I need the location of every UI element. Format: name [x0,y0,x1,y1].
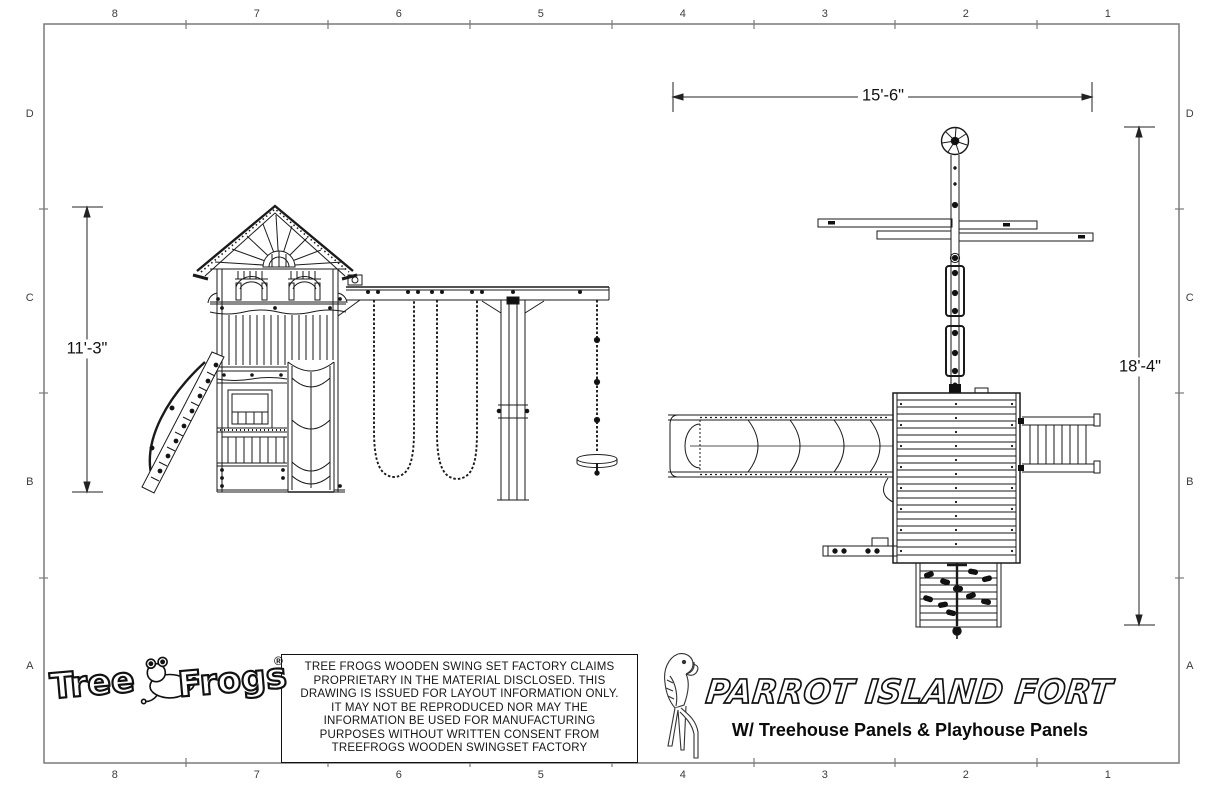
gable-corner-trim [208,269,347,303]
rock-wall-plan [916,563,1001,639]
playhouse-window [228,390,272,428]
buoy-ball-swing [577,300,617,475]
tube-slide-plan [668,415,893,502]
grid-col-label-bottom: 3 [822,769,829,781]
grid-col-label-bottom: 1 [1105,769,1112,781]
grid-row-label-left: A [26,660,34,672]
dimension-elevation-height: 11'-3" [63,340,112,359]
deck-planks [897,400,1016,555]
arched-window-right [288,271,321,300]
dimension-lines [72,82,1155,625]
grid-col-label-top: 8 [112,8,119,20]
grid-col-label-bottom: 6 [396,769,403,781]
grid-row-label-right: A [1186,660,1194,672]
drawing-sheet: 8 7 6 5 4 3 2 1 8 7 6 5 4 3 2 1 D C B A … [0,0,1224,792]
swing-beam-plan [818,155,1093,393]
disclaimer-line: PROPRIETARY IN THE MATERIAL DISCLOSED. T… [282,675,637,689]
title-block: PARROT ISLAND FORT W/ Treehouse Panels &… [648,650,1118,765]
grid-row-label-left: C [26,292,34,304]
top-plan-view [668,128,1100,640]
grid-row-label-right: D [1186,108,1194,120]
grid-col-label-top: 3 [822,8,829,20]
swing-beam-elevation [338,275,609,316]
cantilever-beam-plan [823,538,897,556]
grid-row-label-right: C [1186,292,1194,304]
grid-col-label-top: 4 [680,8,687,20]
access-ladder-plan [1018,414,1100,473]
grid-row-label-right: B [1186,476,1194,488]
registered-trademark-symbol: ® [274,654,283,668]
logo-word-tree: Tree [48,660,136,707]
dimension-plan-width: 15'-6" [858,87,908,106]
grid-col-label-top: 6 [396,8,403,20]
grid-col-label-top: 1 [1105,8,1112,20]
ships-wheel-icon [942,128,969,155]
disclaimer-line: IT MAY NOT BE REPRODUCED NOR MAY THE [282,702,637,716]
proprietary-disclaimer-box: TREE FROGS WOODEN SWING SET FACTORY CLAI… [281,654,638,763]
swing-chains [374,300,477,479]
product-title: PARROT ISLAND FORT [704,672,1112,711]
grid-col-label-top: 5 [538,8,545,20]
upper-deck-band [210,298,346,314]
disclaimer-line: TREE FROGS WOODEN SWING SET FACTORY CLAI… [282,661,637,675]
parrot-outline-icon [648,650,710,762]
grid-col-label-bottom: 5 [538,769,545,781]
grid-col-label-top: 2 [963,8,970,20]
logo-word-frogs: Frogs [176,656,288,705]
fort-roof [193,206,357,279]
wave-slide-elevation [288,360,334,492]
mid-rail-band [217,367,287,383]
a-frame-leg [482,297,544,500]
climbing-ramp [142,352,224,493]
grid-col-label-bottom: 7 [254,769,261,781]
product-subtitle: W/ Treehouse Panels & Playhouse Panels [710,720,1110,741]
grid-col-label-bottom: 2 [963,769,970,781]
grid-row-label-left: D [26,108,34,120]
disclaimer-line: DRAWING IS ISSUED FOR LAYOUT INFORMATION… [282,688,637,702]
fort-deck-plan [893,388,1020,563]
grid-col-label-top: 7 [254,8,261,20]
grid-row-label-left: B [26,476,34,488]
arched-window-left [235,271,268,300]
front-elevation-view [142,206,617,500]
disclaimer-line: PURPOSES WITHOUT WRITTEN CONSENT FROM [282,729,637,743]
disclaimer-line: TREEFROGS WOODEN SWINGSET FACTORY [282,742,637,756]
grid-col-label-bottom: 4 [680,769,687,781]
tree-frogs-logo: Tree Frogs ® [50,652,285,722]
dimension-plan-depth: 18'-4" [1115,358,1165,377]
grid-col-label-bottom: 8 [112,769,119,781]
disclaimer-line: INFORMATION BE USED FOR MANUFACTURING [282,715,637,729]
